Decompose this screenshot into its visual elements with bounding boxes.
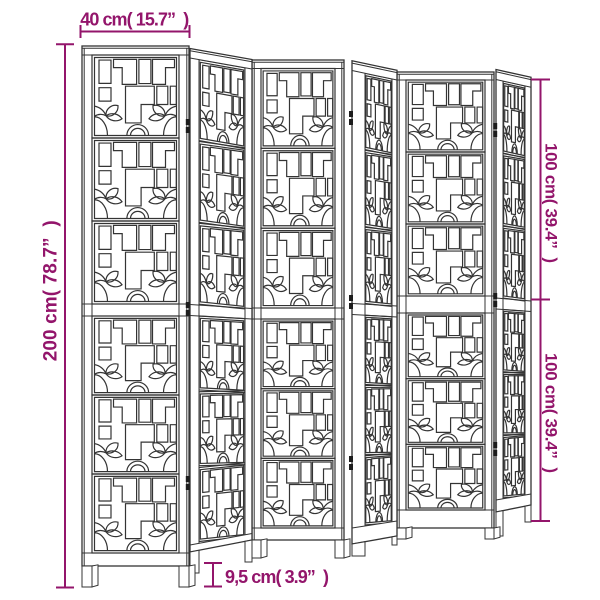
- svg-text:40 cm( 15.7” ): 40 cm( 15.7” ): [80, 10, 189, 30]
- svg-text:100 cm( 39.4” ): 100 cm( 39.4” ): [542, 353, 561, 473]
- svg-text:100 cm( 39.4” ): 100 cm( 39.4” ): [542, 143, 561, 263]
- svg-text:9,5 cm( 3.9” ): 9,5 cm( 3.9” ): [225, 567, 329, 587]
- svg-text:200 cm( 78.7” ): 200 cm( 78.7” ): [41, 220, 62, 361]
